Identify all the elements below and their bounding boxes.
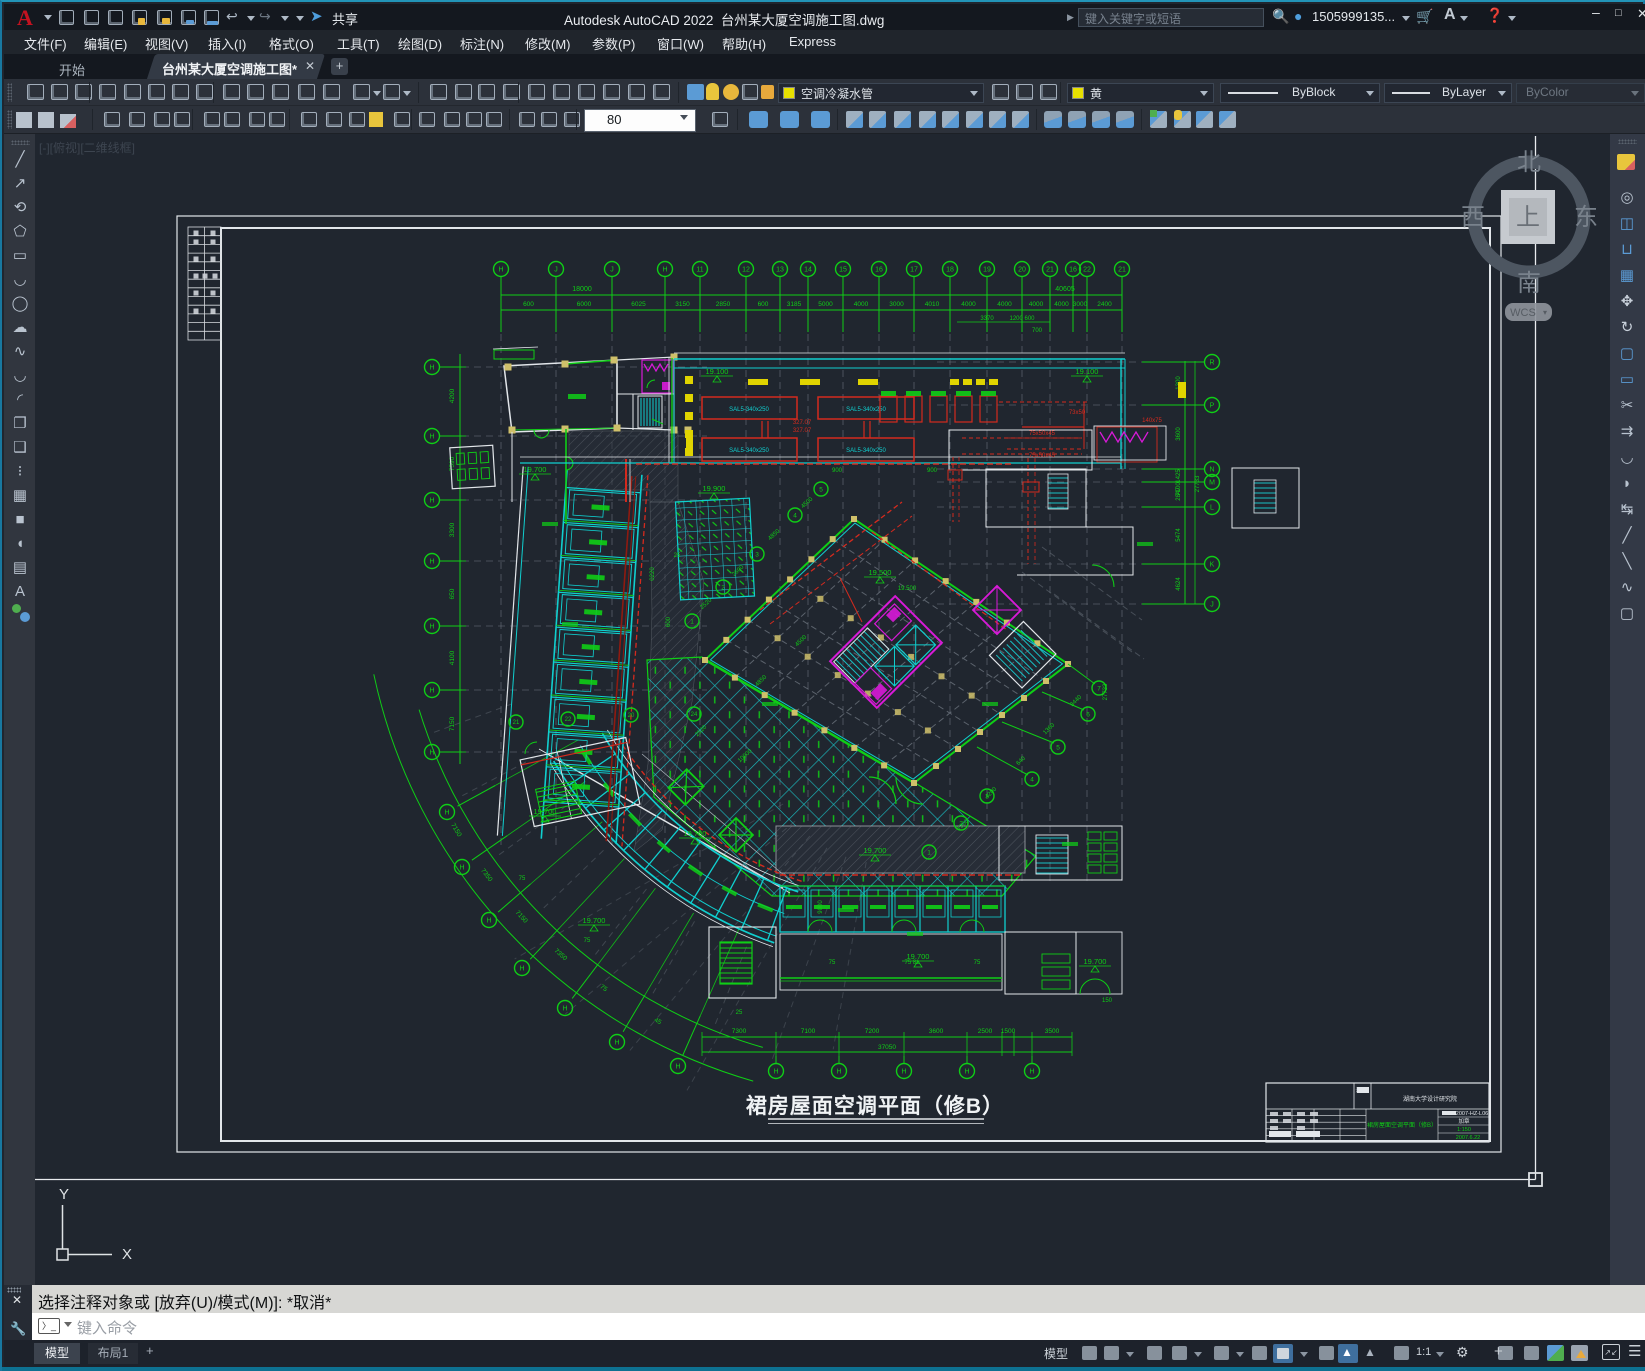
svg-text:J: J [1210,602,1214,609]
svg-text:21: 21 [1118,267,1126,274]
svg-text:900: 900 [927,468,938,474]
svg-text:19.700: 19.700 [534,807,557,816]
svg-text:19.100: 19.100 [1076,367,1099,376]
svg-text:H: H [662,267,667,274]
svg-text:H: H [429,624,434,631]
svg-text:3: 3 [755,551,759,558]
svg-text:5474: 5474 [1176,528,1182,542]
svg-text:H: H [498,267,503,274]
svg-text:2500: 2500 [978,1028,993,1035]
svg-text:SAL5-340x250: SAL5-340x250 [729,448,769,454]
svg-text:27733: 27733 [1103,683,1109,700]
svg-text:7100: 7100 [801,1028,816,1035]
svg-text:19.700: 19.700 [583,916,606,925]
svg-text:640: 640 [1016,755,1028,767]
svg-text:7150: 7150 [449,716,456,731]
svg-text:J: J [554,267,558,274]
svg-text:3600: 3600 [929,1028,944,1035]
svg-text:150: 150 [1102,998,1113,1004]
svg-text:H: H [836,1069,841,1076]
svg-text:东: 东 [1574,204,1598,231]
svg-text:327.07: 327.07 [793,420,812,426]
svg-text:7200: 7200 [865,1028,880,1035]
svg-text:P: P [1210,403,1215,410]
svg-text:7: 7 [1097,685,1101,692]
svg-text:19.700: 19.700 [907,952,930,961]
svg-text:22: 22 [565,717,572,723]
svg-text:24: 24 [691,712,698,718]
svg-text:[-][俯视][二维线框]: [-][俯视][二维线框] [39,140,135,155]
svg-text:19.700: 19.700 [1084,957,1107,966]
svg-text:1500: 1500 [1001,1028,1016,1035]
svg-text:5: 5 [819,486,823,493]
svg-text:4000: 4000 [854,301,869,308]
svg-text:16: 16 [875,267,883,274]
svg-text:2847: 2847 [1176,487,1182,501]
svg-text:11: 11 [696,267,703,274]
svg-text:13: 13 [776,267,784,274]
svg-text:K: K [1210,562,1215,569]
svg-text:4010: 4010 [925,301,940,308]
svg-text:19.500: 19.500 [869,568,892,577]
svg-text:SAL5-340x250: SAL5-340x250 [729,407,769,413]
svg-text:北: 北 [1517,149,1541,176]
svg-text:2: 2 [721,584,725,591]
svg-text:40605: 40605 [1055,286,1075,293]
svg-text:14: 14 [804,267,812,274]
svg-text:37050: 37050 [878,1044,896,1051]
svg-text:27733: 27733 [1195,475,1201,492]
svg-text:4624: 4624 [1176,577,1182,591]
svg-text:22: 22 [1083,267,1091,274]
svg-text:X: X [122,1246,132,1263]
svg-text:南: 南 [1517,270,1541,297]
svg-text:20: 20 [1018,267,1026,274]
svg-text:4200: 4200 [449,388,456,403]
svg-text:19.100: 19.100 [706,367,729,376]
svg-text:R: R [1209,360,1214,367]
svg-text:140x75: 140x75 [1142,418,1162,424]
svg-text:消: 消 [1355,1087,1360,1094]
svg-text:21: 21 [513,720,520,726]
svg-text:H: H [964,1069,969,1076]
svg-text:SAL5-340x250: SAL5-340x250 [846,448,886,454]
svg-text:19: 19 [983,267,991,274]
svg-text:6: 6 [1086,711,1090,718]
svg-text:7150: 7150 [449,822,463,838]
svg-text:600: 600 [523,301,534,308]
svg-text:▾: ▾ [1543,308,1547,317]
svg-text:0220: 0220 [650,567,656,581]
svg-text:3440: 3440 [1069,694,1083,708]
svg-text:6025: 6025 [631,301,646,308]
svg-text:17: 17 [910,267,918,274]
svg-text:650: 650 [449,588,456,599]
svg-text:7350: 7350 [553,947,569,962]
svg-text:L: L [1210,505,1214,512]
svg-text:18000: 18000 [572,286,592,293]
svg-text:7150: 7150 [514,909,529,925]
svg-text:1425: 1425 [1176,469,1182,483]
svg-text:H: H [444,810,449,817]
svg-text:6000: 6000 [577,301,592,308]
svg-text:湖南大学设计研究院: 湖南大学设计研究院 [1403,1095,1457,1103]
svg-text:上: 上 [1516,204,1540,231]
svg-text:4100: 4100 [449,650,456,665]
svg-text:WCS: WCS [1510,307,1536,319]
svg-text:西: 西 [1461,204,1485,231]
svg-text:9000: 9000 [818,900,824,914]
svg-text:15: 15 [839,267,847,274]
svg-text:75: 75 [974,960,981,966]
svg-text:4000: 4000 [997,301,1012,308]
svg-text:3000: 3000 [889,301,904,308]
svg-text:1200 600: 1200 600 [1009,316,1035,322]
svg-text:4850: 4850 [754,674,768,688]
svg-text:19.700: 19.700 [684,829,707,838]
svg-text:加章: 加章 [1458,1117,1470,1125]
svg-text:1: 1 [927,849,931,856]
svg-text:3185: 3185 [787,301,802,308]
svg-text:16: 16 [1069,267,1077,274]
svg-text:M: M [1209,480,1215,487]
svg-text:2007.6.22: 2007.6.22 [1456,1135,1480,1141]
svg-text:75: 75 [829,960,836,966]
svg-text:H: H [486,918,491,925]
svg-text:4: 4 [793,512,797,519]
svg-text:7300: 7300 [732,1028,747,1035]
svg-text:900: 900 [832,468,843,474]
svg-text:H: H [614,1040,619,1047]
svg-text:4200: 4200 [984,786,998,800]
svg-text:H: H [429,559,434,566]
svg-text:H: H [675,1064,680,1071]
svg-text:4500: 4500 [794,634,808,648]
svg-text:600: 600 [758,301,769,308]
svg-text:Y: Y [59,1186,69,1203]
svg-text:1:150: 1:150 [1457,1127,1471,1133]
svg-text:4000: 4000 [961,301,976,308]
svg-text:5: 5 [1056,744,1060,751]
svg-text:25: 25 [736,1010,743,1016]
svg-text:1: 1 [690,618,694,625]
svg-text:73x50: 73x50 [1069,410,1086,416]
svg-text:H: H [1029,1069,1034,1076]
svg-text:19.700: 19.700 [524,465,547,474]
svg-text:3300: 3300 [449,522,456,537]
svg-text:19.900: 19.900 [703,484,726,493]
svg-text:H: H [429,365,434,372]
svg-text:3370: 3370 [980,316,994,322]
svg-text:N: N [1209,467,1214,474]
svg-text:H: H [773,1069,778,1076]
svg-text:2400: 2400 [1097,301,1112,308]
svg-text:75: 75 [584,938,591,944]
svg-text:H: H [429,498,434,505]
svg-text:75: 75 [519,876,526,882]
svg-text:裙房屋面空调平面（修B）: 裙房屋面空调平面（修B） [1367,1121,1437,1129]
svg-text:75x50x45: 75x50x45 [1029,431,1056,437]
svg-text:4000: 4000 [1054,301,1069,308]
svg-text:327.07: 327.07 [793,428,812,434]
svg-text:18: 18 [946,267,954,274]
svg-text:H: H [519,966,524,973]
svg-text:H: H [459,865,464,872]
svg-text:700: 700 [1032,328,1043,334]
svg-text:4000: 4000 [1029,301,1044,308]
svg-text:H: H [429,434,434,441]
svg-text:5000: 5000 [818,301,833,308]
svg-text:J: J [610,267,614,274]
svg-text:4: 4 [1030,776,1034,783]
svg-text:12: 12 [742,267,750,274]
svg-text:3600: 3600 [1176,427,1182,441]
svg-text:21: 21 [1046,267,1054,274]
svg-text:25: 25 [674,553,681,559]
svg-text:H: H [562,1006,567,1013]
svg-text:3150: 3150 [675,301,690,308]
svg-text:600: 600 [666,616,672,627]
svg-text:20: 20 [628,713,635,719]
svg-text:裙房屋面空调平面（修B）: 裙房屋面空调平面（修B） [746,1094,1004,1118]
svg-text:7350: 7350 [479,867,494,883]
svg-text:2850: 2850 [716,301,731,308]
svg-text:19.700: 19.700 [864,846,887,855]
svg-text:H: H [429,688,434,695]
svg-text:3500: 3500 [1045,1028,1060,1035]
svg-text:H: H [901,1069,906,1076]
svg-text:19.500: 19.500 [898,586,917,592]
svg-text:2007-HZ-L06: 2007-HZ-L06 [1456,1111,1488,1117]
svg-text:3000: 3000 [1073,301,1088,308]
